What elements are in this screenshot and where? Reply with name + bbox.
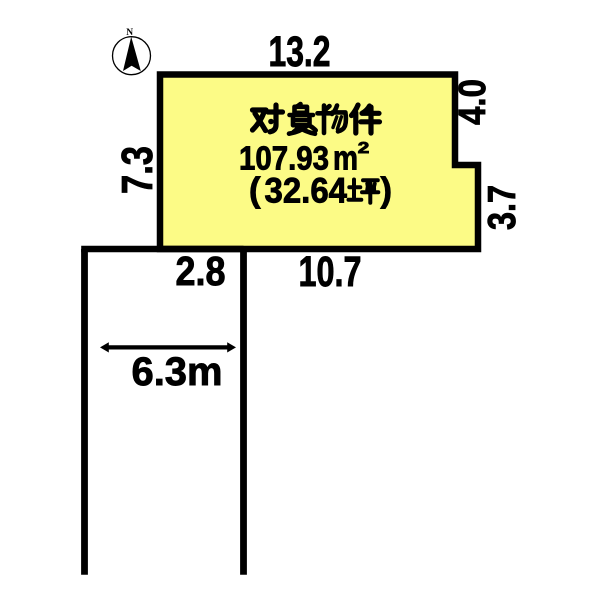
svg-text:): ) xyxy=(381,172,393,210)
svg-text:10.7: 10.7 xyxy=(299,248,362,296)
svg-text:N: N xyxy=(126,28,133,38)
svg-text:(: ( xyxy=(249,172,261,210)
svg-text:7.3: 7.3 xyxy=(113,146,162,194)
svg-text:2: 2 xyxy=(358,140,370,157)
svg-text:6.3m: 6.3m xyxy=(132,350,223,394)
svg-text:3.7: 3.7 xyxy=(481,185,524,230)
svg-text:4.0: 4.0 xyxy=(452,79,494,125)
svg-text:2.8: 2.8 xyxy=(176,248,226,294)
svg-text:32.64: 32.64 xyxy=(265,171,348,211)
svg-text:13.2: 13.2 xyxy=(269,28,331,76)
